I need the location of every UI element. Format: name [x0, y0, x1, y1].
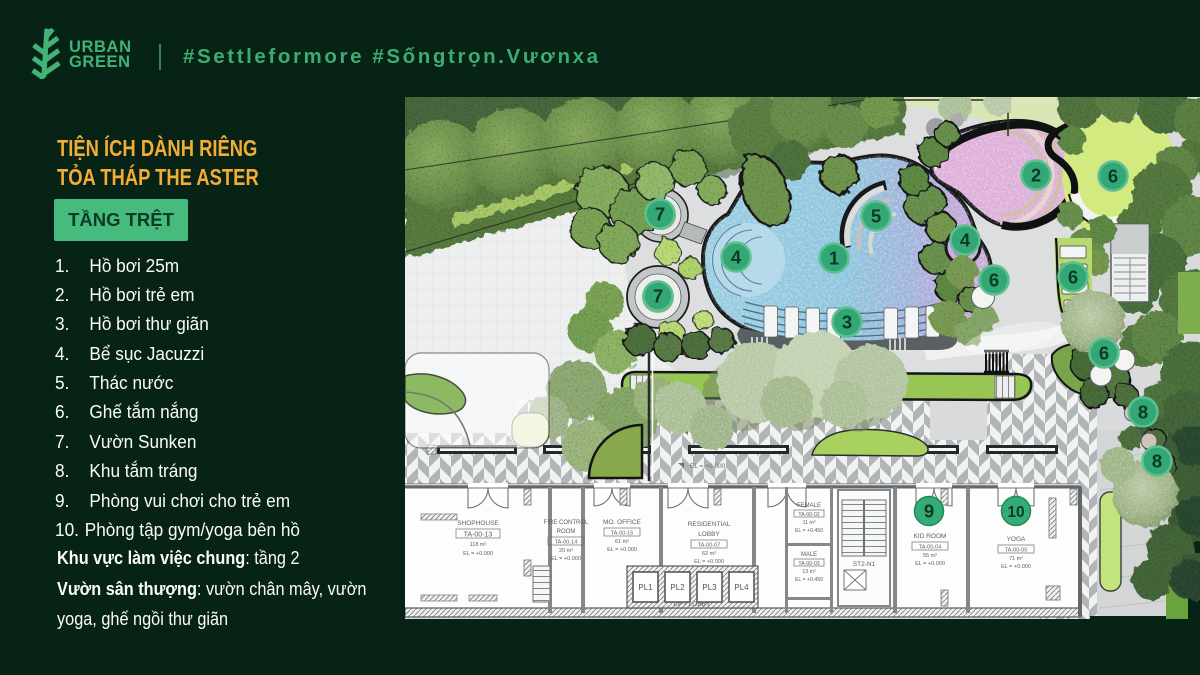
svg-text:6: 6 [1108, 166, 1118, 187]
svg-text:TA-00-02: TA-00-02 [798, 512, 819, 518]
svg-text:MO. OFFICE: MO. OFFICE [603, 519, 642, 526]
svg-text:5: 5 [871, 206, 881, 227]
svg-text:118 m²: 118 m² [470, 542, 487, 548]
svg-text:8: 8 [1152, 451, 1162, 472]
svg-text:3: 3 [842, 312, 852, 333]
svg-text:10: 10 [1007, 504, 1024, 521]
svg-text:FIRE CONTROL: FIRE CONTROL [544, 520, 589, 526]
svg-text:61 m²: 61 m² [615, 539, 629, 545]
svg-text:TA-00-03: TA-00-03 [798, 561, 819, 567]
svg-text:4: 4 [731, 247, 742, 268]
svg-text:EL = +0.000: EL = +0.000 [915, 561, 945, 567]
svg-text:13 m²: 13 m² [802, 569, 816, 575]
svg-text:FEMALE: FEMALE [797, 503, 821, 509]
svg-text:TA-00-04: TA-00-04 [919, 545, 942, 551]
svg-text:TA-00-13: TA-00-13 [464, 532, 493, 539]
svg-text:11 m²: 11 m² [803, 520, 816, 526]
svg-text:ROOM: ROOM [557, 529, 576, 535]
svg-text:ST2-N1: ST2-N1 [853, 561, 876, 568]
svg-text:TA-00-14: TA-00-14 [555, 540, 578, 546]
svg-text:EL = +0.450: EL = +0.450 [795, 528, 823, 534]
svg-text:EL = +0.000: EL = +0.000 [1001, 564, 1031, 570]
svg-text:EL = +0.000: EL = +0.000 [607, 547, 637, 553]
svg-text:MALE: MALE [801, 552, 817, 558]
svg-text:8: 8 [1138, 402, 1148, 423]
svg-text:EL = +0.000: EL = +0.000 [463, 551, 493, 557]
svg-text:55 m²: 55 m² [923, 553, 937, 559]
svg-text:KID ROOM: KID ROOM [914, 533, 947, 540]
svg-text:YOGA: YOGA [1007, 536, 1026, 543]
svg-text:PL3: PL3 [702, 583, 717, 592]
svg-text:4: 4 [960, 230, 971, 251]
svg-text:6: 6 [1068, 267, 1078, 288]
svg-text:9: 9 [924, 501, 934, 522]
svg-text:EL = +0.000: EL = +0.000 [694, 559, 724, 565]
svg-text:PL2: PL2 [670, 583, 685, 592]
svg-text:7: 7 [655, 204, 665, 225]
svg-text:SHOPHOUSE: SHOPHOUSE [457, 520, 499, 527]
svg-text:RESIDENTIAL: RESIDENTIAL [688, 521, 731, 528]
svg-text:71 m²: 71 m² [1009, 556, 1023, 562]
svg-text:TA-00-15: TA-00-15 [611, 531, 634, 537]
svg-text:20 m²: 20 m² [559, 548, 573, 554]
svg-text:6: 6 [989, 270, 999, 291]
svg-text:EL = +0.000: EL = +0.000 [690, 463, 726, 470]
svg-text:TA-00-07: TA-00-07 [698, 543, 721, 549]
svg-text:2: 2 [1031, 165, 1041, 186]
svg-text:1: 1 [829, 248, 839, 269]
svg-text:PL1: PL1 [638, 583, 653, 592]
svg-text:PL4: PL4 [734, 583, 749, 592]
svg-text:7: 7 [653, 286, 663, 307]
svg-text:62 m²: 62 m² [702, 551, 716, 557]
svg-text:LIFT LOBBY: LIFT LOBBY [674, 601, 711, 608]
svg-text:LOBBY: LOBBY [698, 531, 720, 538]
svg-text:TA-00-05: TA-00-05 [1005, 548, 1028, 554]
svg-text:EL = +0.000: EL = +0.000 [551, 556, 581, 562]
svg-text:EL = +0.450: EL = +0.450 [795, 577, 823, 583]
svg-text:6: 6 [1099, 343, 1109, 364]
